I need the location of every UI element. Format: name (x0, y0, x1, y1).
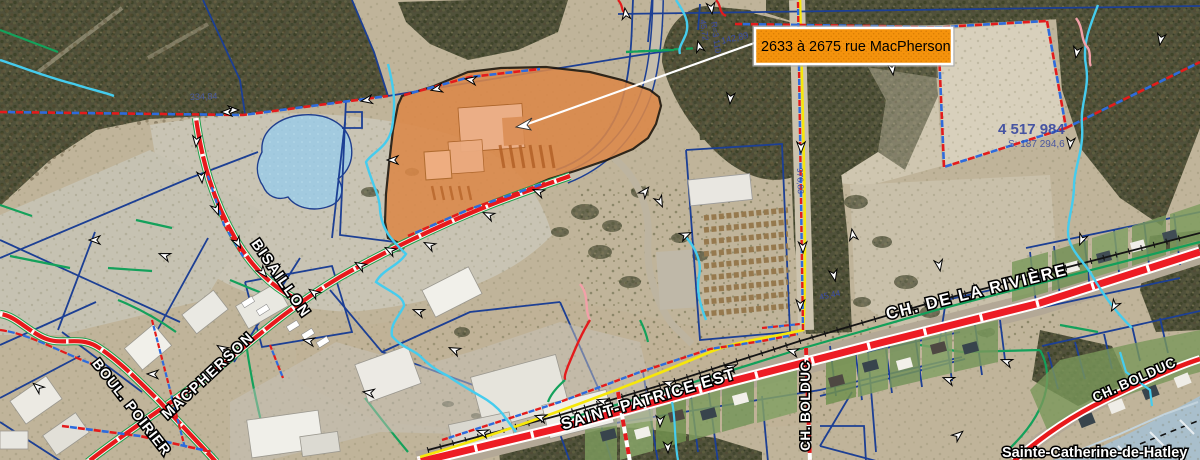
svg-text:2633 à 2675 rue MacPherson: 2633 à 2675 rue MacPherson (761, 39, 951, 55)
svg-text:334,84: 334,84 (190, 91, 218, 102)
svg-text:CH. BOLDUC: CH. BOLDUC (798, 361, 813, 451)
svg-text:Sainte-Catherine-de-Hatley: Sainte-Catherine-de-Hatley (1002, 445, 1187, 460)
svg-text:976,88: 976,88 (795, 168, 806, 195)
svg-text:4 517 984: 4 517 984 (998, 121, 1065, 138)
svg-text:S: 187 294,6: S: 187 294,6 (1008, 139, 1065, 150)
